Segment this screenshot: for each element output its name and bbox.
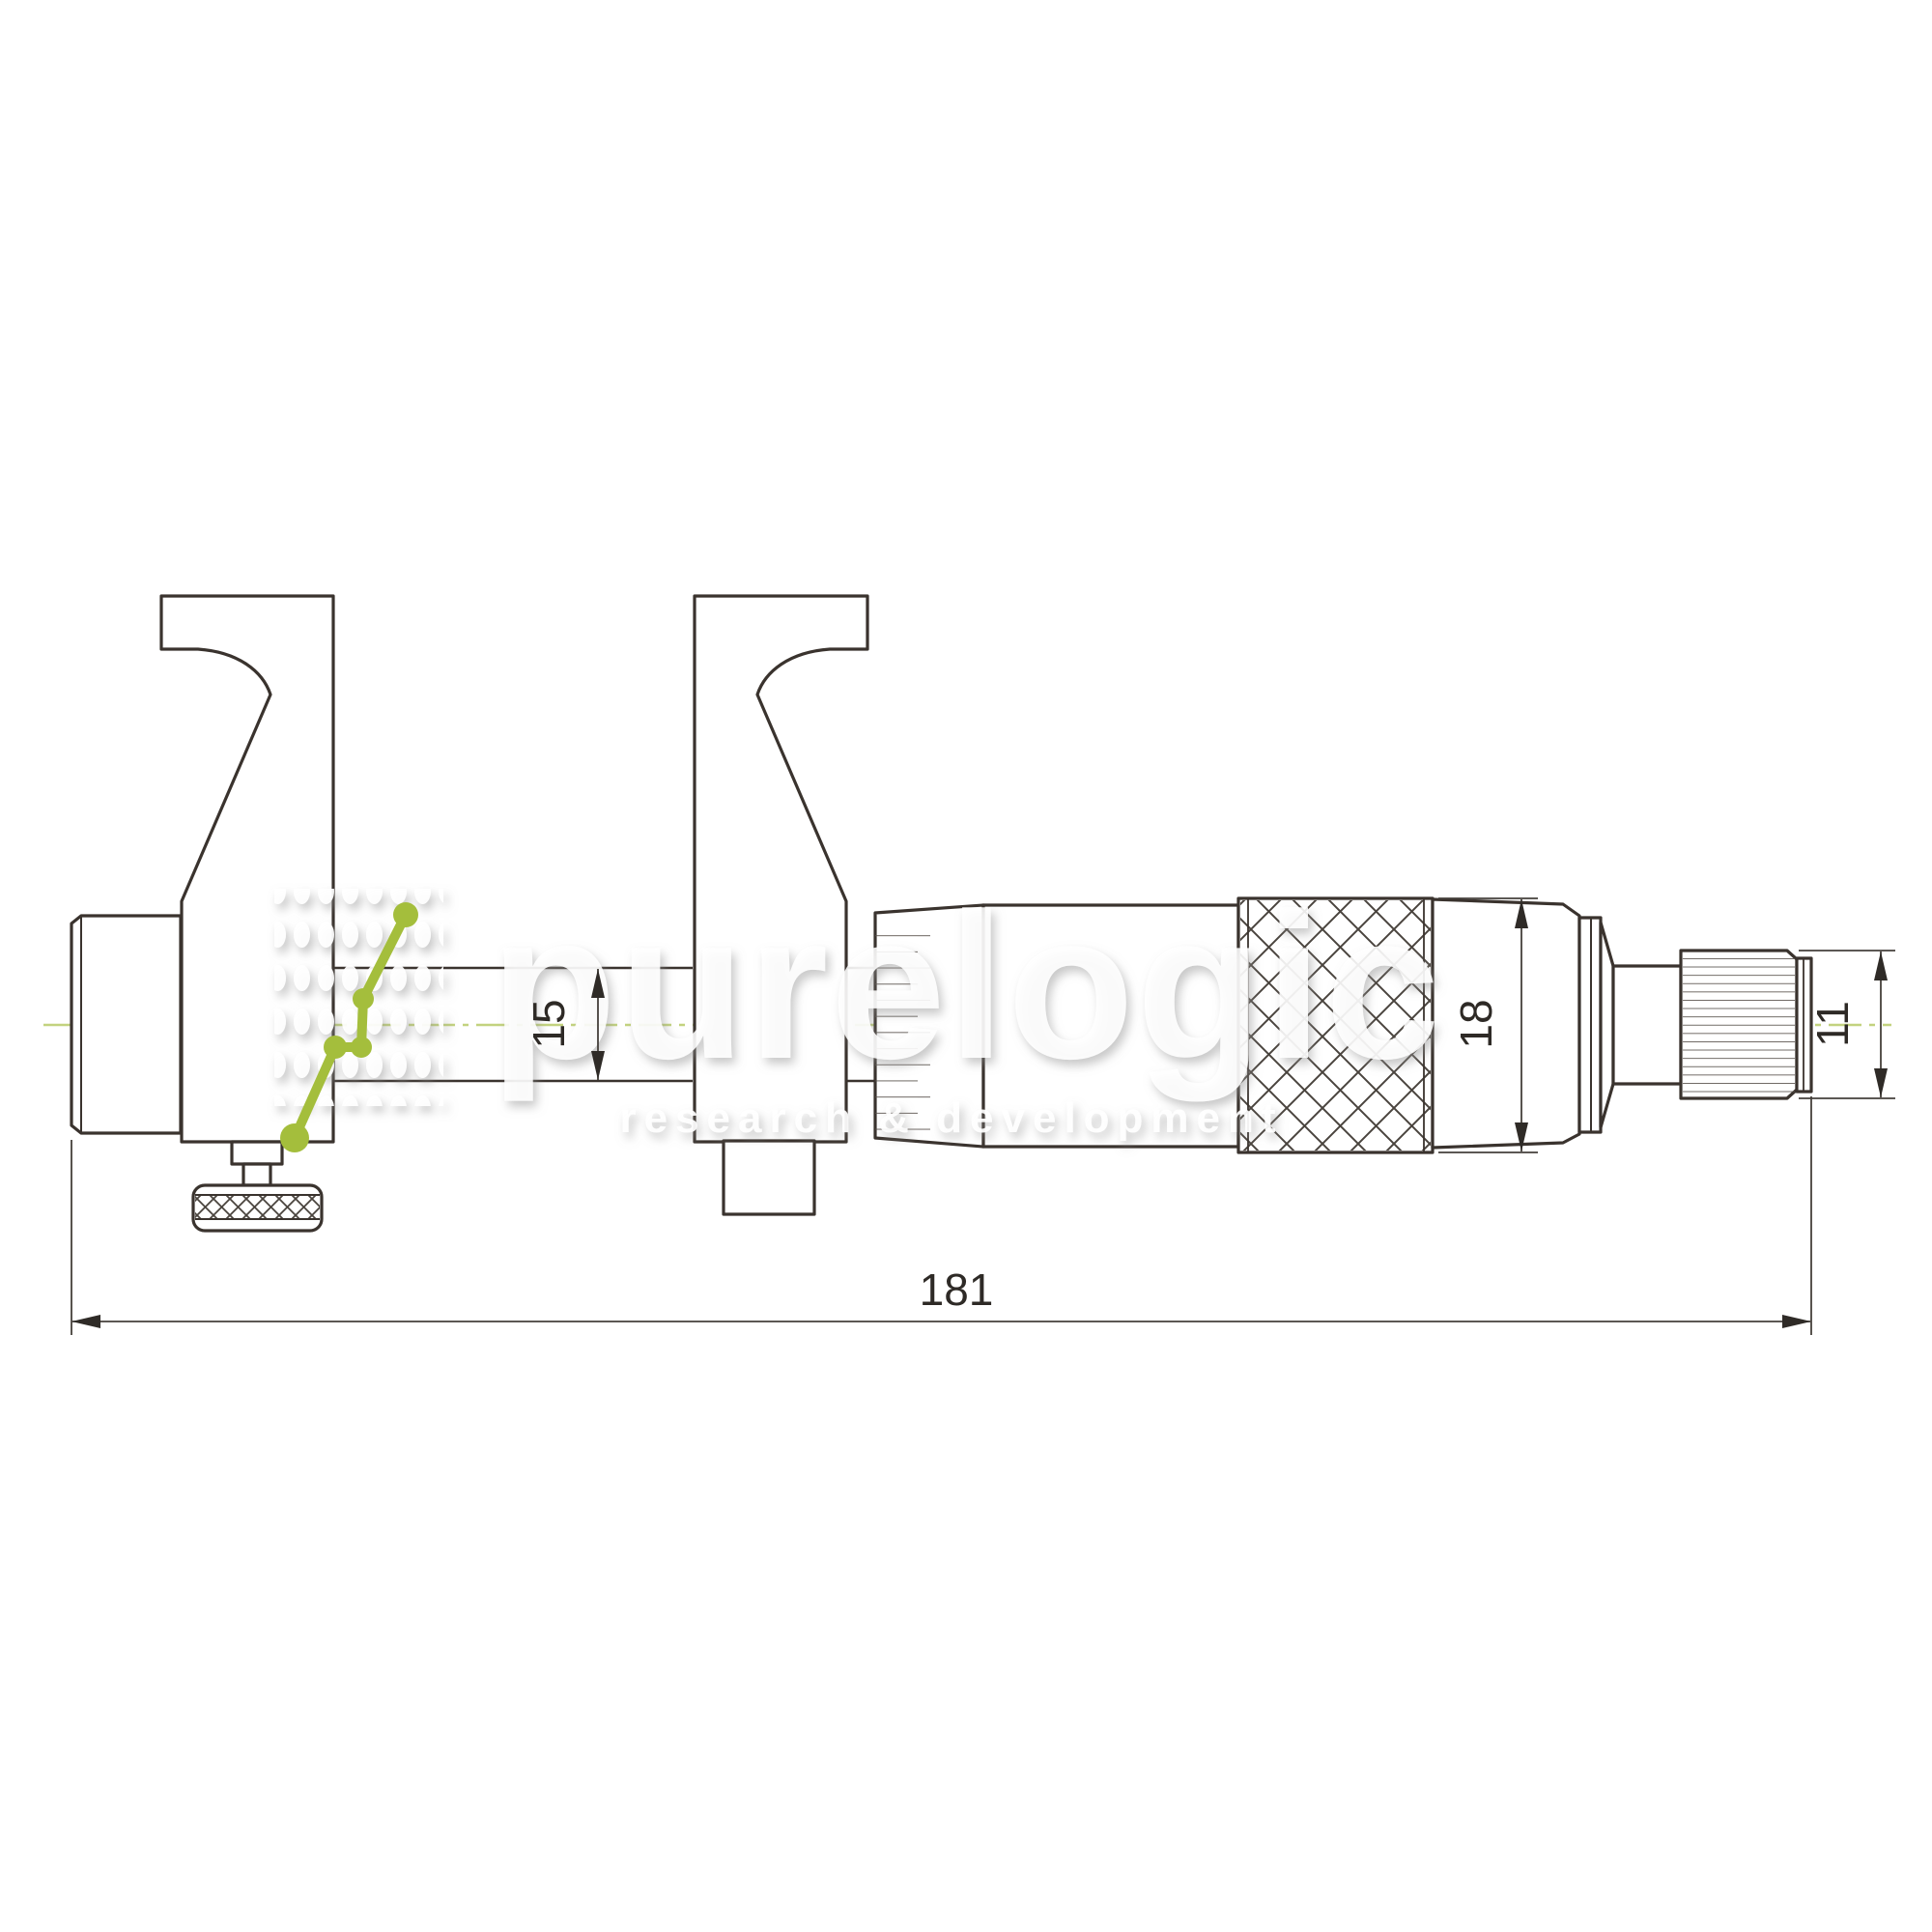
jaw-right-boss [724,1141,814,1214]
watermark: purelogic research & development [274,869,1442,1142]
drawing-sheet: purelogic research & development 15 [0,0,1932,1932]
watermark-tagline: research & development [619,1094,1283,1142]
dim-label-11: 11 [1807,1001,1858,1047]
micrometer-technical-drawing: purelogic research & development 15 [0,0,1932,1932]
ratchet-knurl-lines [1683,954,1795,1094]
dim-label-18: 18 [1451,999,1501,1048]
dim-label-181: 181 [920,1264,994,1315]
ratchet-stop [1681,951,1811,1098]
watermark-brand: purelogic [490,869,1442,1102]
lock-knob [193,1142,322,1231]
anvil-head [71,916,181,1133]
spindle-neck [1579,918,1681,1132]
dim-ratchet-11: 11 [1799,951,1895,1098]
dim-label-15: 15 [524,999,574,1048]
